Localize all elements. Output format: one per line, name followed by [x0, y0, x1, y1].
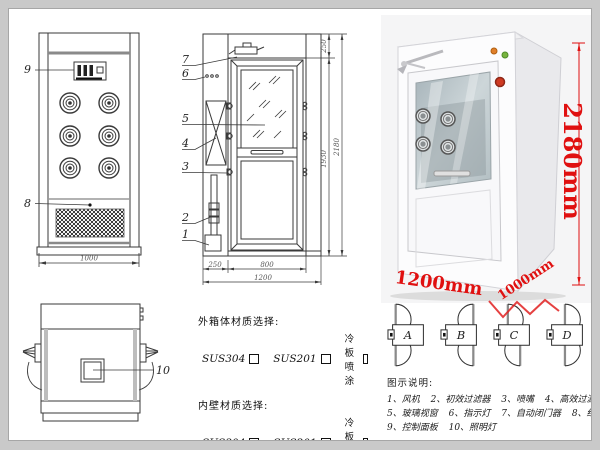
material-group-title: 外箱体材质选择: [198, 313, 382, 328]
legend-row: 1、风机 2、初效过滤器 3、喷嘴 4、高效过滤器 [387, 393, 592, 407]
material-option-label: SUS304 [202, 437, 245, 441]
legend-row: 5、玻璃视窗 6、指示灯 7、自动闭门器 8、红外线感应器 [387, 407, 592, 421]
checkbox-inner-coldplate[interactable] [363, 438, 368, 441]
legend-item: 3、喷嘴 [501, 395, 534, 405]
part-label-6: 6 [182, 67, 189, 80]
material-options-row: SUS304 SUS201 冷板喷涂 [202, 415, 382, 441]
checkbox-outer-sus201[interactable] [321, 354, 331, 364]
part-label-8: 8 [24, 197, 31, 210]
nozzle-icons [60, 93, 119, 178]
part-label-2: 2 [181, 211, 189, 224]
legend-item: 9、控制面板 [387, 423, 438, 433]
orange-indicator-light [491, 48, 497, 54]
door-closer [235, 47, 257, 54]
air-grille [56, 209, 124, 237]
legend-item: 2、初效过滤器 [431, 395, 491, 405]
door-hinges [227, 102, 307, 176]
dim-text-1200: 1200 [254, 274, 272, 282]
material-options-row: SUS304 SUS201 冷板喷涂 [202, 331, 382, 387]
door-handle [251, 151, 283, 155]
left-door-swing [23, 344, 42, 390]
checkbox-outer-coldplate[interactable] [363, 354, 368, 364]
green-indicator-light [502, 52, 508, 58]
red-emergency-button [496, 78, 505, 87]
material-option-label: SUS304 [202, 353, 245, 365]
door-config-label-b: B [456, 329, 465, 342]
door-glass [241, 70, 293, 148]
door-config-a: A [385, 297, 431, 373]
part-label-3: 3 [182, 160, 189, 173]
photo-door-handle [434, 171, 470, 176]
dim-text-250-top: 250 [320, 39, 328, 54]
side-view-drawing: 7 6 5 4 3 2 1 250 1930 2180 250 800 1200 [179, 17, 364, 309]
legend-item: 4、高效过滤器 [545, 395, 592, 405]
part-label-9: 9 [24, 63, 31, 76]
part-label-1: 1 [182, 228, 189, 241]
dim-text-1930: 1930 [320, 150, 328, 168]
legend-item: 1、风机 [387, 395, 420, 405]
legend-item: 10、照明灯 [449, 423, 496, 433]
spec-sheet-canvas: 9 8 1000 [8, 8, 592, 441]
legend-item: 5、玻璃视窗 [387, 409, 438, 419]
legend-title: 图示说明: [387, 375, 592, 389]
door-config-c: C [491, 297, 537, 373]
checkbox-inner-sus201[interactable] [321, 438, 331, 441]
door-config-label-c: C [510, 329, 519, 342]
part-label-10: 10 [156, 364, 170, 377]
material-option-label: 冷板喷涂 [345, 415, 359, 441]
door-config-b: B [438, 297, 484, 373]
material-option-label: SUS201 [273, 353, 316, 365]
product-photo: 2180mm 1200mm 1000mm [373, 13, 592, 305]
leader-line-8 [35, 204, 90, 206]
photo-dim-height: 2180mm [558, 102, 587, 220]
dim-text-800: 800 [260, 261, 274, 269]
material-selection: 外箱体材质选择: SUS304 SUS201 冷板喷涂 内壁材质选择: SUS3… [196, 313, 382, 441]
material-group-title: 内壁材质选择: [198, 397, 382, 412]
legend: 图示说明: 1、风机 2、初效过滤器 3、喷嘴 4、高效过滤器 5、玻璃视窗 6… [387, 375, 592, 435]
legend-item: 7、自动闭门器 [501, 409, 561, 419]
dim-text-250-bottom: 250 [207, 261, 222, 269]
part-label-4: 4 [181, 137, 189, 150]
top-view-drawing: 10 [21, 298, 191, 438]
checkbox-inner-sus304[interactable] [249, 438, 259, 441]
legend-item: 6、指示灯 [449, 409, 491, 419]
door-config-d: D [544, 297, 590, 373]
door-config-label-a: A [403, 329, 412, 342]
dim-text-1000: 1000 [80, 255, 98, 263]
part-label-5: 5 [182, 112, 189, 125]
door-config-label-d: D [561, 329, 571, 342]
material-option-label: 冷板喷涂 [345, 331, 359, 387]
door-config-diagrams: A B C [385, 297, 592, 377]
front-view-drawing: 9 8 1000 [21, 19, 191, 271]
legend-row: 9、控制面板 10、照明灯 [387, 421, 592, 435]
indicator-lights [206, 75, 219, 78]
part-label-7: 7 [182, 53, 189, 66]
dim-text-2180: 2180 [333, 138, 341, 157]
material-option-label: SUS201 [273, 437, 316, 441]
glass-hatch [247, 76, 286, 138]
filter-stack [205, 175, 221, 251]
door-frame [231, 60, 303, 250]
fan-box [206, 101, 226, 165]
legend-item: 8、红外线感应器 [572, 409, 592, 419]
checkbox-outer-sus304[interactable] [249, 354, 259, 364]
